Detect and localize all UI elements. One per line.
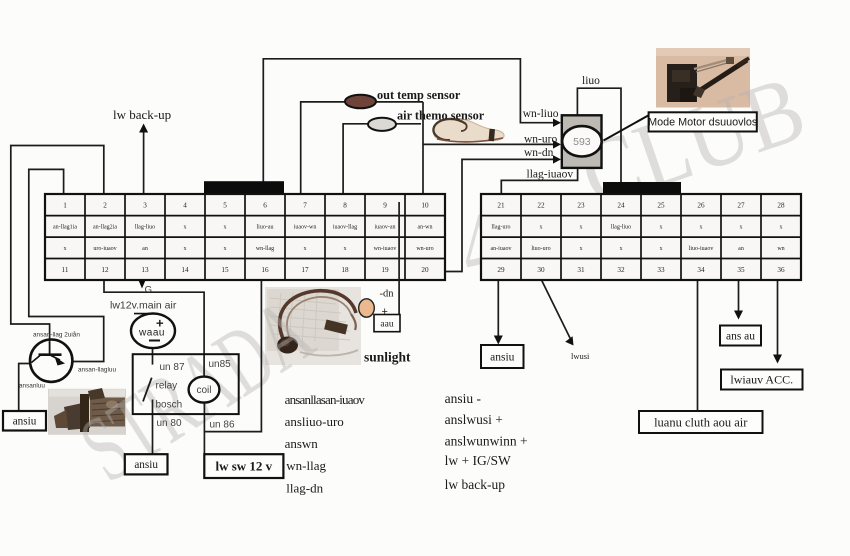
svg-text:19: 19: [381, 266, 389, 274]
svg-text:17: 17: [301, 266, 309, 274]
svg-text:ans au: ans au: [726, 331, 755, 343]
svg-text:lw12v.main air: lw12v.main air: [110, 300, 177, 312]
svg-text:13: 13: [141, 266, 149, 274]
svg-text:29: 29: [497, 266, 505, 274]
svg-text:36: 36: [777, 266, 785, 274]
svg-text:11: 11: [62, 266, 69, 274]
svg-text:18: 18: [341, 266, 349, 274]
svg-text:an-iuaov: an-iuaov: [491, 246, 512, 252]
svg-text:iuaov-wn: iuaov-wn: [294, 224, 317, 230]
svg-text:x: x: [344, 246, 347, 252]
svg-text:ansanllasan-iuaov: ansanllasan-iuaov: [285, 392, 366, 407]
svg-text:un 87: un 87: [160, 362, 185, 373]
svg-text:4: 4: [183, 201, 187, 209]
svg-text:an-llag1ia: an-llag1ia: [53, 224, 77, 230]
svg-text:wn-iuaov: wn-iuaov: [374, 246, 397, 252]
svg-text:ansan-llag 2uiån: ansan-llag 2uiån: [33, 331, 80, 339]
svg-text:1: 1: [63, 201, 67, 209]
svg-text:30: 30: [537, 266, 545, 274]
svg-text:luanu cluth aou air: luanu cluth aou air: [654, 415, 748, 429]
svg-text:llag-dn: llag-dn: [286, 481, 323, 496]
svg-text:3: 3: [143, 201, 147, 209]
svg-text:x: x: [224, 224, 227, 230]
svg-text:anslwusi +: anslwusi +: [445, 412, 503, 427]
svg-text:12: 12: [101, 266, 109, 274]
svg-text:an: an: [142, 246, 148, 252]
svg-text:34: 34: [697, 266, 705, 274]
svg-text:an-llag2ia: an-llag2ia: [93, 224, 117, 230]
svg-text:llag-liuo: llag-liuo: [135, 224, 155, 230]
svg-text:Mode Motor dsuuovlos: Mode Motor dsuuovlos: [648, 117, 758, 129]
svg-text:anslwunwinn +: anslwunwinn +: [445, 434, 528, 449]
svg-text:35: 35: [737, 266, 745, 274]
svg-text:liuo-iuaov: liuo-iuaov: [689, 246, 714, 252]
svg-text:uro-iuaov: uro-iuaov: [93, 246, 116, 252]
svg-text:lw back-up: lw back-up: [113, 107, 171, 122]
svg-text:aau: aau: [380, 319, 393, 329]
svg-text:bosch: bosch: [156, 400, 183, 411]
svg-text:x: x: [64, 246, 67, 252]
svg-text:x: x: [660, 224, 663, 230]
svg-text:lwiauv ACC.: lwiauv ACC.: [730, 373, 793, 387]
svg-text:20: 20: [421, 266, 429, 274]
svg-text:ansiu: ansiu: [490, 352, 515, 364]
svg-text:x: x: [184, 224, 187, 230]
svg-text:liuo-au: liuo-au: [257, 224, 274, 230]
svg-text:an: an: [738, 246, 744, 252]
svg-text:wn-llag: wn-llag: [286, 458, 326, 473]
svg-text:x: x: [660, 246, 663, 252]
svg-text:25: 25: [657, 201, 665, 209]
svg-text:G: G: [145, 285, 152, 296]
svg-text:coil: coil: [196, 385, 211, 396]
svg-text:lw + IG/SW: lw + IG/SW: [445, 453, 511, 468]
svg-text:x: x: [224, 246, 227, 252]
svg-text:wn-dn: wn-dn: [524, 147, 554, 159]
svg-text:15: 15: [221, 266, 229, 274]
svg-text:llag-uro: llag-uro: [492, 224, 511, 230]
svg-text:wn-liuo: wn-liuo: [523, 108, 559, 120]
svg-text:9: 9: [383, 201, 387, 209]
svg-text:22: 22: [537, 201, 545, 209]
svg-text:31: 31: [577, 266, 585, 274]
svg-text:26: 26: [697, 201, 705, 209]
svg-text:x: x: [540, 224, 543, 230]
svg-text:wn-llag: wn-llag: [256, 246, 274, 252]
svg-text:wn: wn: [777, 246, 784, 252]
svg-text:16: 16: [261, 266, 269, 274]
svg-text:an-wn: an-wn: [418, 224, 433, 230]
svg-text:ansiu -: ansiu -: [445, 391, 482, 406]
svg-text:llag-iuaov: llag-iuaov: [527, 169, 574, 181]
svg-text:ansiu: ansiu: [134, 459, 158, 471]
svg-text:10: 10: [421, 201, 429, 209]
svg-text:iuaov-llag: iuaov-llag: [333, 224, 357, 230]
svg-text:ansiu: ansiu: [13, 416, 37, 428]
svg-text:ansanluu: ansanluu: [19, 383, 45, 390]
svg-text:27: 27: [737, 201, 745, 209]
svg-text:x: x: [740, 224, 743, 230]
svg-text:-dn: -dn: [380, 289, 395, 300]
svg-text:28: 28: [777, 201, 785, 209]
svg-text:7: 7: [303, 201, 307, 209]
svg-text:x: x: [700, 224, 703, 230]
svg-text:out temp sensor: out temp sensor: [377, 88, 461, 102]
svg-text:32: 32: [617, 266, 625, 274]
svg-text:iuaov-an: iuaov-an: [375, 224, 396, 230]
svg-text:air themo sensor: air themo sensor: [397, 109, 485, 123]
svg-text:un 86: un 86: [210, 420, 235, 431]
svg-text:2: 2: [103, 201, 107, 209]
svg-text:lw back-up: lw back-up: [445, 477, 506, 492]
svg-text:14: 14: [181, 266, 189, 274]
svg-text:5: 5: [223, 201, 227, 209]
svg-text:wn-uro: wn-uro: [524, 134, 557, 146]
svg-text:8: 8: [343, 201, 347, 209]
svg-text:21: 21: [497, 201, 505, 209]
svg-text:ansliuo-uro: ansliuo-uro: [285, 414, 344, 429]
svg-text:lwusi: lwusi: [571, 351, 590, 361]
svg-text:lw sw 12 v: lw sw 12 v: [215, 459, 272, 474]
svg-text:x: x: [620, 246, 623, 252]
svg-text:waau: waau: [138, 328, 165, 339]
svg-text:x: x: [304, 246, 307, 252]
svg-text:x: x: [580, 224, 583, 230]
svg-text:llag-liuo: llag-liuo: [611, 224, 631, 230]
svg-text:liuo-uro: liuo-uro: [531, 246, 550, 252]
svg-text:ansan-llagluu: ansan-llagluu: [78, 367, 116, 374]
svg-text:answn: answn: [285, 436, 319, 451]
svg-text:un 80: un 80: [157, 418, 182, 429]
svg-text:33: 33: [657, 266, 665, 274]
svg-text:x: x: [780, 224, 783, 230]
svg-text:6: 6: [263, 201, 267, 209]
svg-text:sunlight: sunlight: [364, 350, 411, 365]
svg-text:wn-uro: wn-uro: [416, 246, 433, 252]
svg-text:liuo: liuo: [582, 75, 600, 87]
svg-text:593: 593: [573, 136, 591, 148]
svg-text:x: x: [580, 246, 583, 252]
svg-text:24: 24: [617, 201, 625, 209]
svg-text:un85: un85: [209, 359, 232, 370]
svg-text:23: 23: [577, 201, 585, 209]
svg-text:relay: relay: [156, 381, 178, 392]
svg-text:x: x: [184, 246, 187, 252]
